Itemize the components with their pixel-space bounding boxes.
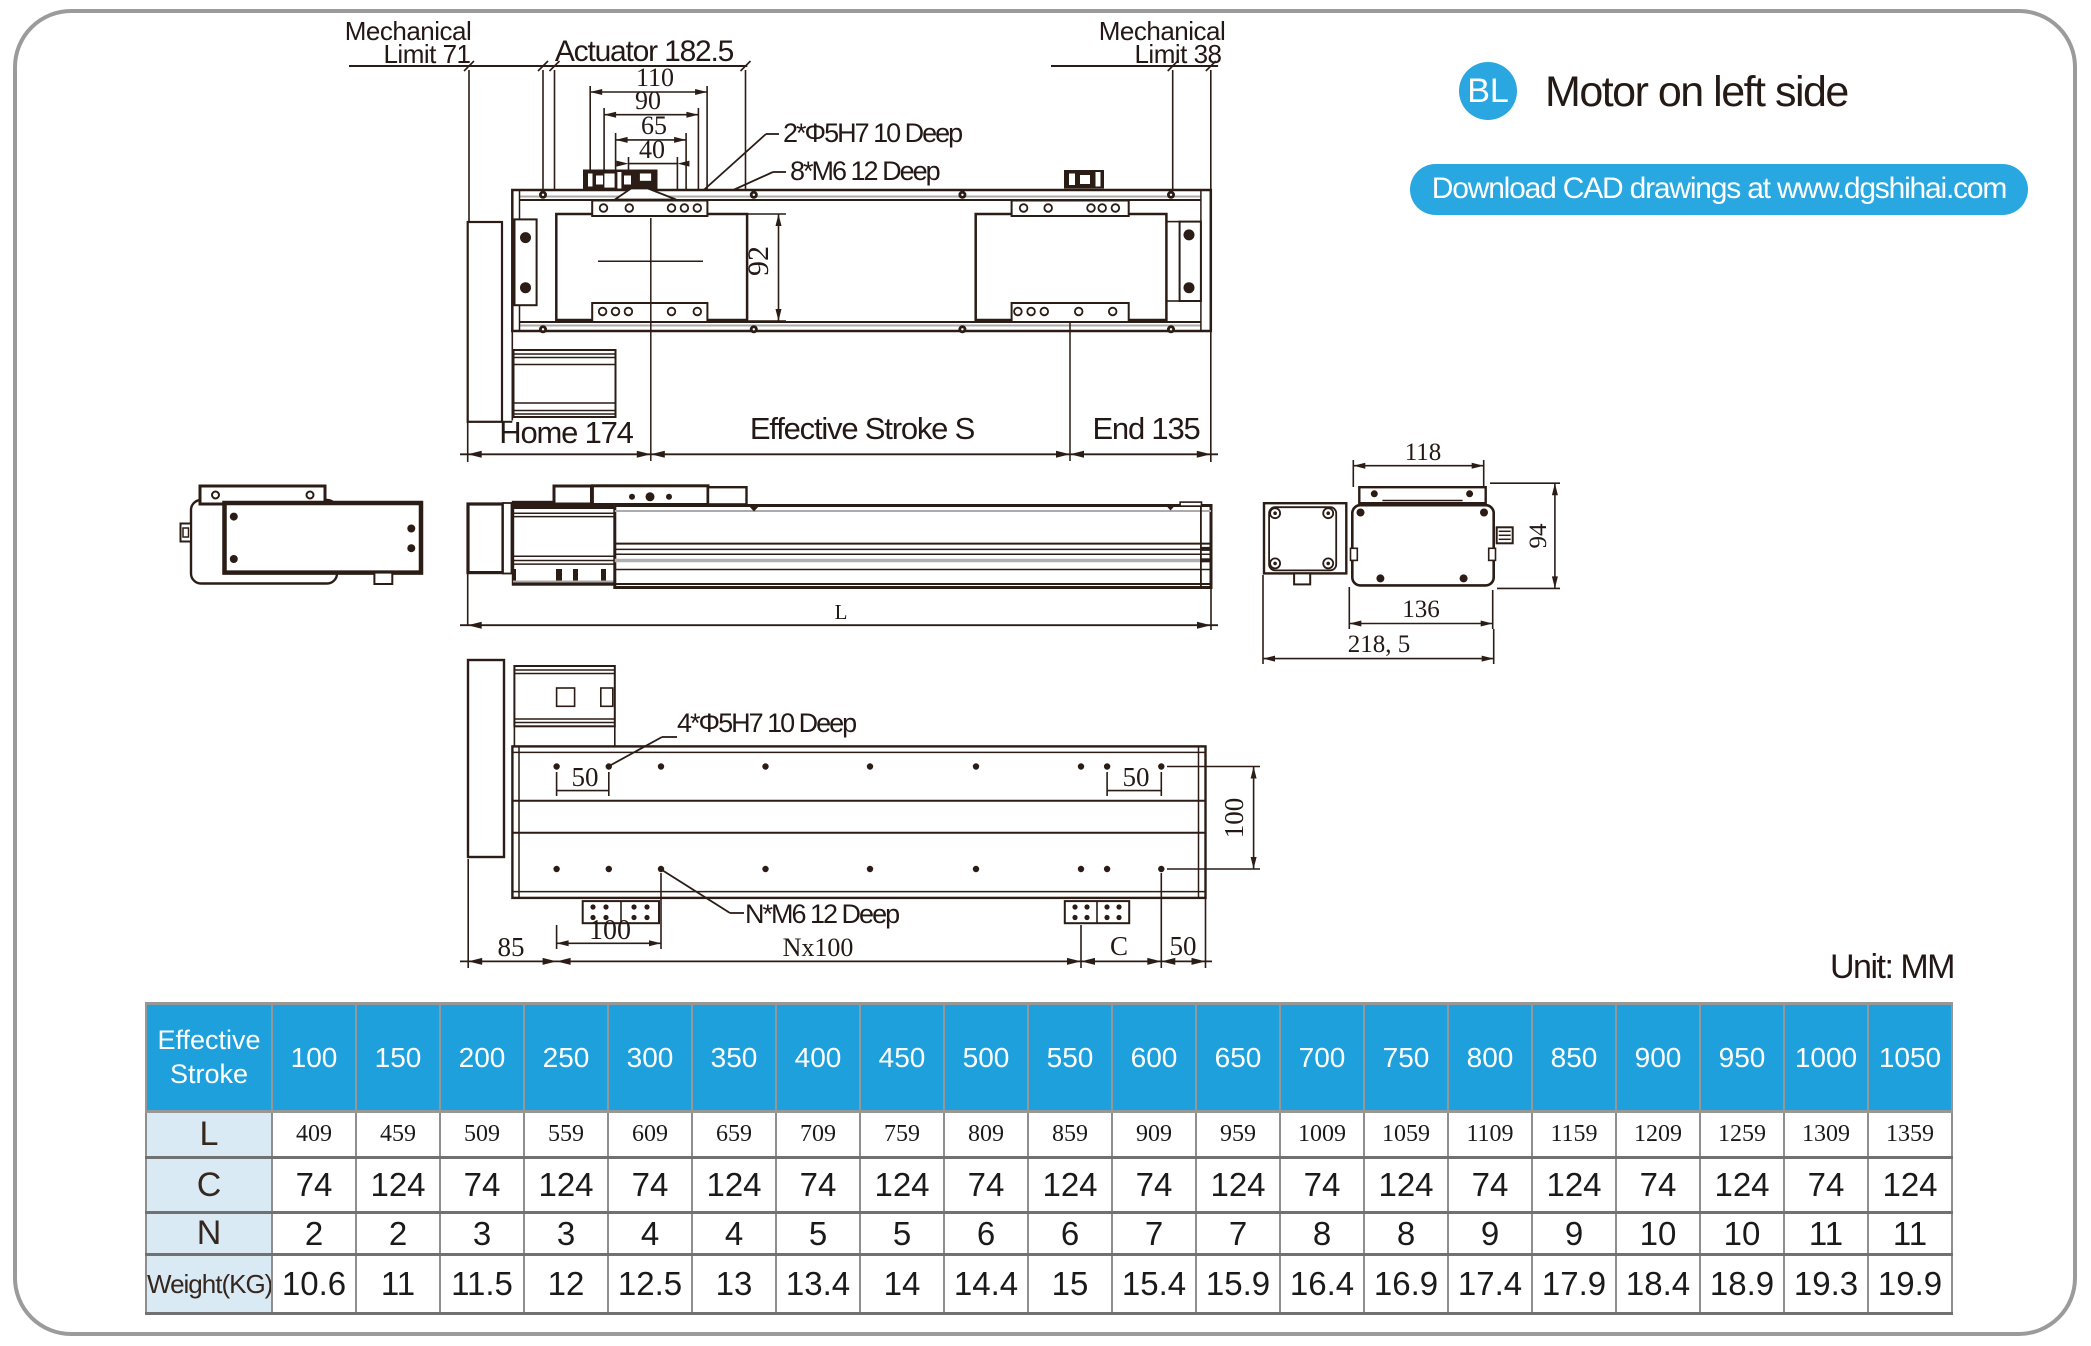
svg-text:Nx100: Nx100 bbox=[783, 933, 854, 962]
svg-text:92: 92 bbox=[742, 246, 775, 276]
svg-text:50: 50 bbox=[1123, 762, 1150, 792]
svg-text:85: 85 bbox=[498, 932, 525, 962]
svg-text:Limit 71: Limit 71 bbox=[383, 39, 470, 69]
svg-text:Limit 38: Limit 38 bbox=[1134, 39, 1221, 69]
svg-text:94: 94 bbox=[1525, 523, 1552, 549]
svg-text:Effective Stroke S: Effective Stroke S bbox=[750, 411, 975, 446]
svg-text:100: 100 bbox=[1219, 798, 1249, 839]
svg-text:40: 40 bbox=[639, 135, 665, 164]
svg-text:2*Φ5H7 10 Deep: 2*Φ5H7 10 Deep bbox=[783, 118, 962, 148]
svg-text:L: L bbox=[835, 600, 848, 624]
svg-text:4*Φ5H7 10 Deep: 4*Φ5H7 10 Deep bbox=[677, 708, 856, 738]
svg-text:136: 136 bbox=[1402, 596, 1440, 623]
svg-text:8*M6 12 Deep: 8*M6 12 Deep bbox=[790, 156, 940, 186]
svg-text:C: C bbox=[1110, 931, 1128, 961]
svg-text:50: 50 bbox=[572, 762, 599, 792]
svg-text:50: 50 bbox=[1170, 931, 1197, 961]
svg-text:N*M6 12 Deep: N*M6 12 Deep bbox=[745, 899, 899, 929]
svg-text:118: 118 bbox=[1405, 439, 1442, 466]
svg-text:End 135: End 135 bbox=[1092, 411, 1199, 446]
svg-text:218, 5: 218, 5 bbox=[1348, 631, 1411, 658]
svg-text:Home 174: Home 174 bbox=[499, 415, 633, 450]
svg-text:100: 100 bbox=[589, 915, 631, 946]
